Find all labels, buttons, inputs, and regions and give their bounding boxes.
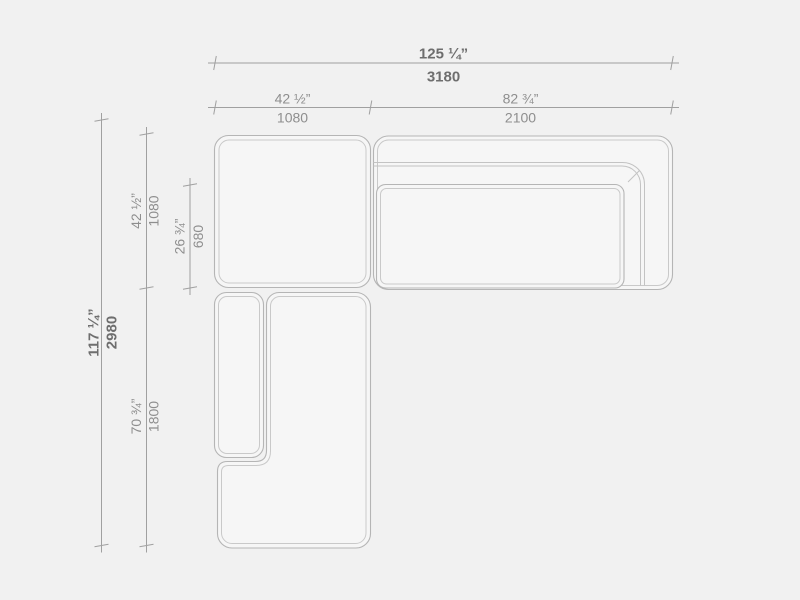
sofa-module (374, 136, 673, 290)
seat-cushion-outline (377, 185, 625, 289)
chaise-module (215, 293, 371, 549)
dim-overall-width-mm: 3180 (427, 69, 460, 86)
dim-overall-depth-inches: 117 ¼” (86, 308, 103, 356)
ottoman-outline (215, 136, 371, 288)
dim-right-width-mm: 2100 (505, 110, 536, 126)
dim-overall-depth: 117 ¼” 2980 (86, 113, 121, 553)
dim-seat-depth: 26 ¾” 680 (172, 178, 207, 295)
dim-section-widths: 42 ½” 1080 82 ¾” 2100 (208, 91, 679, 126)
dim-overall-width-inches: 125 ¼” (419, 46, 468, 63)
dim-top-depth-mm: 1080 (146, 195, 162, 226)
ottoman-module (215, 136, 371, 288)
chaise-backrest-outline (215, 293, 264, 458)
dim-vertical-sections: 42 ½” 1080 70 ¾” 1800 (128, 127, 162, 553)
dim-top-depth-inches: 42 ½” (128, 193, 144, 229)
dim-left-length-inches: 70 ¾” (128, 398, 144, 434)
dim-left-length-mm: 1800 (146, 401, 162, 432)
dim-left-width-mm: 1080 (277, 110, 308, 126)
dim-right-width-inches: 82 ¾” (503, 91, 539, 107)
sofa-dimension-diagram: 125 ¼” 3180 42 ½” 1080 82 ¾” 2100 117 ¼”… (0, 0, 800, 600)
diagram-svg: 125 ¼” 3180 42 ½” 1080 82 ¾” 2100 117 ¼”… (0, 0, 800, 600)
dim-overall-depth-mm: 2980 (104, 316, 121, 349)
dim-seat-depth-inches: 26 ¾” (172, 218, 188, 254)
dim-overall-width: 125 ¼” 3180 (208, 46, 679, 86)
dim-left-width-inches: 42 ½” (275, 91, 311, 107)
dim-seat-depth-mm: 680 (190, 225, 206, 249)
